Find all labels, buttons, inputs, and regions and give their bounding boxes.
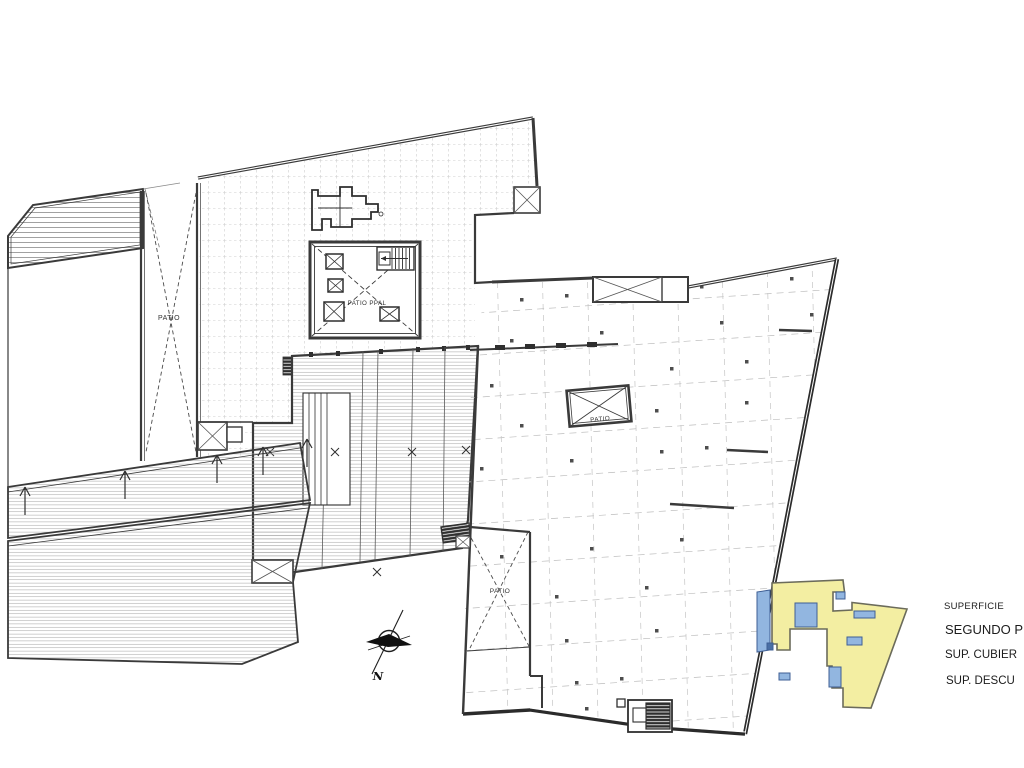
patio-lower-label: PATIO: [490, 588, 511, 595]
north-arrow-blade: [366, 634, 412, 647]
floor-plan-drawing: PATIO: [0, 0, 1024, 768]
patio-left-label: PATIO: [158, 315, 180, 322]
north-label: N: [372, 669, 384, 683]
right-wing-walls: [463, 259, 837, 734]
north-arrow: N: [366, 610, 412, 683]
skylight-long: [593, 277, 688, 302]
stair-run: [377, 247, 414, 270]
skylight-band: [252, 560, 293, 583]
patio-principal: PATIO PPAL: [310, 242, 420, 338]
dashed-boundary-line: [145, 189, 160, 250]
stair-sliver: [283, 357, 292, 375]
patio-center: PATIO: [567, 385, 632, 426]
key-plan: [757, 580, 907, 708]
legend-covered: SUP. CUBIER: [945, 649, 1017, 661]
extension-line: [143, 183, 180, 189]
skylight-corner: [514, 187, 540, 213]
legend-floor: SEGUNDO PI: [945, 622, 1024, 637]
stair-bottom-right: [617, 699, 672, 732]
legend-uncovered: SUP. DESCU: [946, 675, 1015, 687]
roof-block-top-left: [8, 183, 180, 268]
legend: SUPERFICIE SEGUNDO PI SUP. CUBIER SUP. D…: [944, 601, 1024, 687]
legend-superficie: SUPERFICIE: [944, 601, 1004, 612]
floor-plan-page: PATIO: [0, 0, 1024, 768]
patio-left: PATIO: [141, 183, 201, 461]
inner-stair: [303, 393, 350, 505]
patio-principal-label: PATIO PPAL: [348, 300, 387, 307]
skylight-small: [456, 536, 470, 548]
